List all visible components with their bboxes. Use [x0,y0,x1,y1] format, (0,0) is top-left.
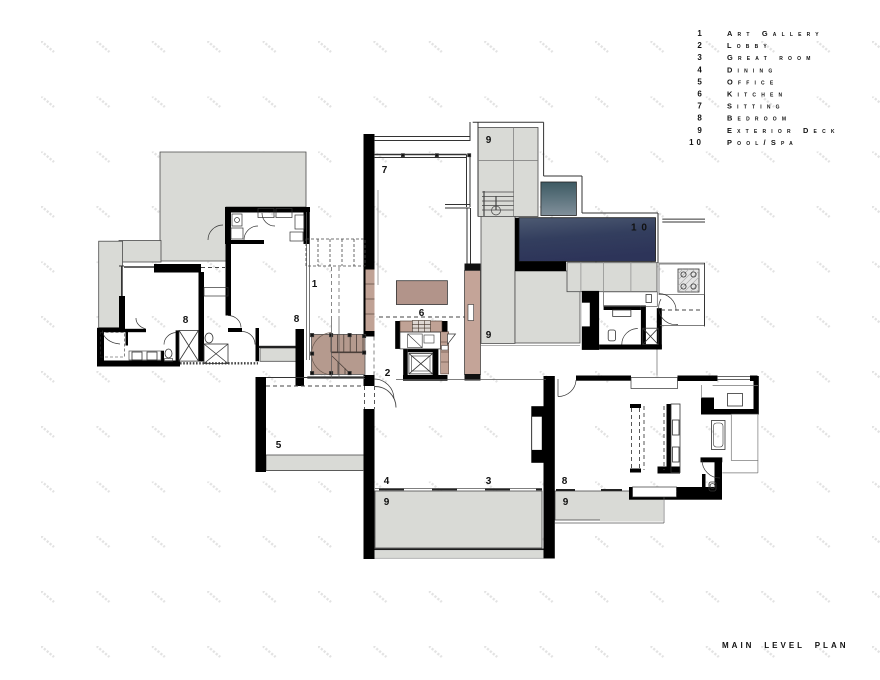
svg-text:2: 2 [697,41,704,50]
svg-text:Office: Office [727,77,778,86]
svg-text:9: 9 [384,497,391,508]
svg-text:4: 4 [697,65,704,74]
svg-text:9: 9 [563,497,570,508]
svg-text:8: 8 [294,314,301,325]
svg-text:MAIN LEVEL PLAN: MAIN LEVEL PLAN [722,641,849,650]
svg-text:Exterior Deck: Exterior Deck [727,126,840,135]
svg-text:Lobby: Lobby [727,41,772,50]
svg-text:1 0: 1 0 [631,223,648,234]
svg-text:8: 8 [697,114,704,123]
svg-text:Pool/Spa: Pool/Spa [727,138,798,147]
svg-text:10: 10 [689,138,704,147]
svg-text:Kitchen: Kitchen [727,90,787,99]
svg-text:7: 7 [697,102,704,111]
svg-text:4: 4 [384,476,391,487]
svg-text:3: 3 [486,476,493,487]
svg-text:2: 2 [385,368,392,379]
svg-text:5: 5 [276,440,283,451]
svg-text:1: 1 [312,279,319,290]
svg-text:Great room: Great room [727,53,816,62]
svg-text:Art Gallery: Art Gallery [727,29,824,38]
svg-text:Dining: Dining [727,65,777,74]
svg-text:5: 5 [697,77,704,86]
svg-text:9: 9 [486,135,493,146]
svg-text:Bedroom: Bedroom [727,114,791,123]
svg-text:6: 6 [419,308,426,319]
svg-text:3: 3 [697,53,704,62]
svg-text:7: 7 [382,165,389,176]
svg-text:Sitting: Sitting [727,102,785,111]
svg-text:8: 8 [183,315,190,326]
svg-text:9: 9 [486,330,493,341]
svg-text:8: 8 [562,476,569,487]
svg-text:9: 9 [697,126,704,135]
svg-text:6: 6 [697,90,704,99]
svg-text:1: 1 [697,29,704,38]
